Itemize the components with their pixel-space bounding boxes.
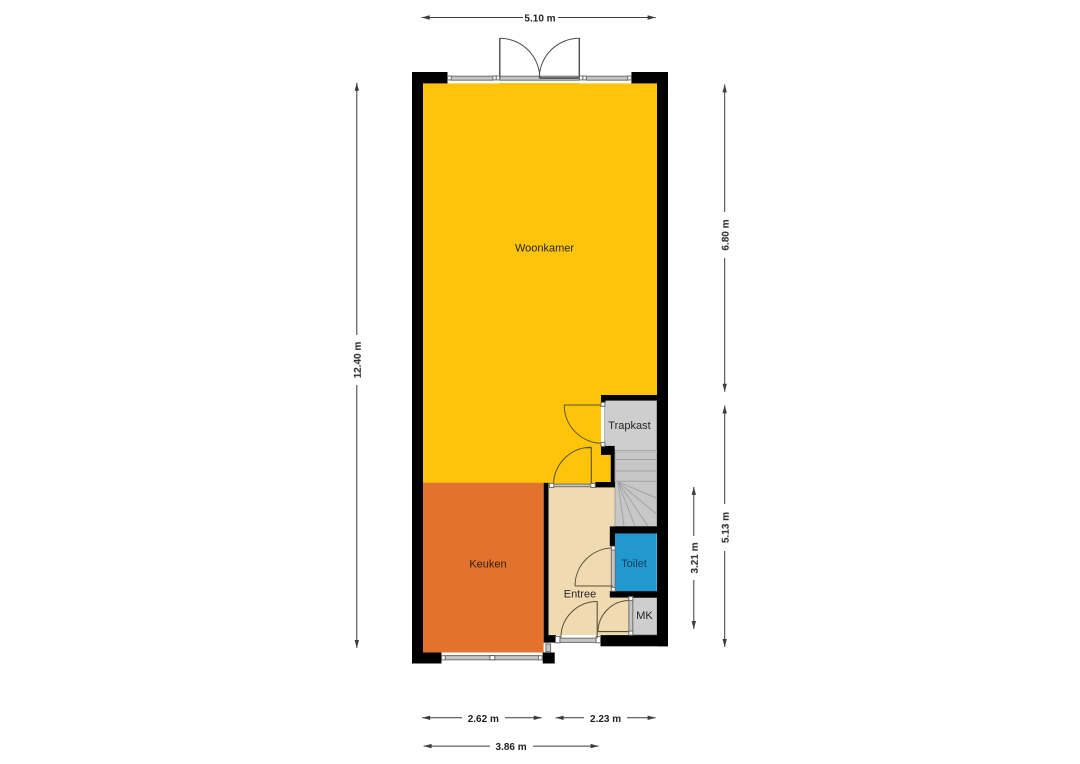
svg-text:6.80 m: 6.80 m: [721, 219, 732, 250]
svg-text:3.21 m: 3.21 m: [690, 542, 701, 573]
svg-text:3.86 m: 3.86 m: [496, 742, 527, 753]
svg-text:2.23 m: 2.23 m: [590, 714, 621, 725]
svg-text:Keuken: Keuken: [469, 559, 506, 571]
svg-text:Entree: Entree: [564, 589, 596, 601]
svg-text:5.13 m: 5.13 m: [721, 512, 732, 543]
svg-text:Trapkast: Trapkast: [608, 420, 650, 432]
svg-text:2.62 m: 2.62 m: [468, 714, 499, 725]
svg-text:5.10 m: 5.10 m: [524, 14, 555, 25]
svg-text:12.40 m: 12.40 m: [353, 342, 364, 379]
svg-text:MK: MK: [636, 610, 653, 622]
svg-text:Woonkamer: Woonkamer: [515, 243, 574, 255]
svg-text:Toilet: Toilet: [621, 558, 647, 570]
